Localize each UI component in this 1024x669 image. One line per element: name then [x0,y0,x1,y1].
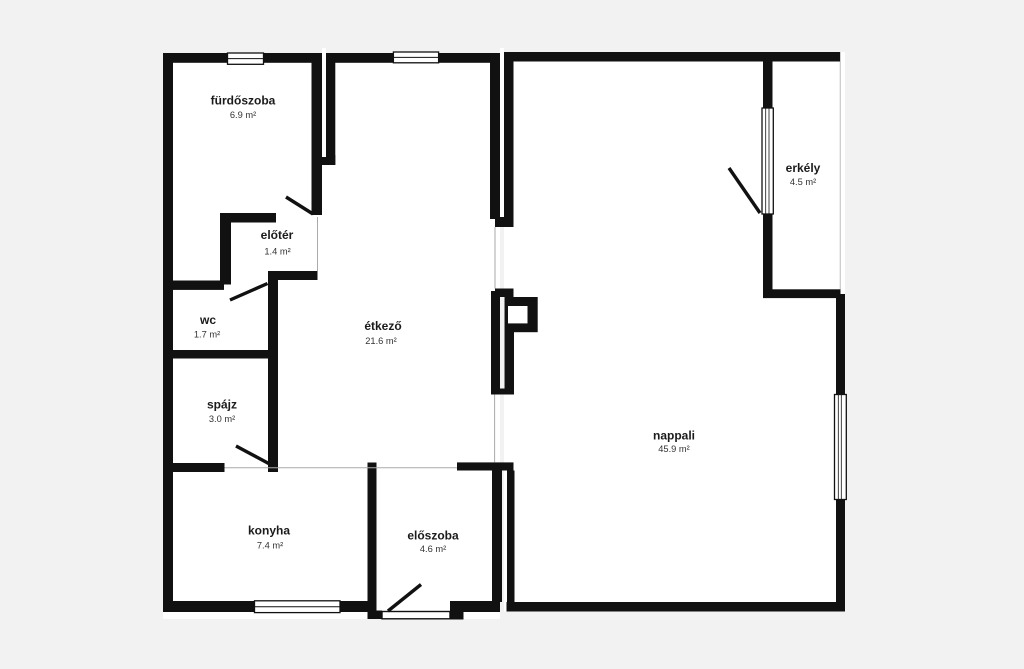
svg-text:45.9 m²: 45.9 m² [658,444,690,454]
svg-text:7.4 m²: 7.4 m² [257,541,283,551]
svg-text:előtér: előtér [261,228,294,242]
svg-text:előszoba: előszoba [407,529,459,543]
svg-text:3.0 m²: 3.0 m² [209,414,235,424]
svg-text:erkély: erkély [786,161,821,175]
svg-text:4.6 m²: 4.6 m² [420,544,446,554]
svg-text:nappali: nappali [653,429,695,443]
svg-text:wc: wc [199,313,216,327]
svg-text:21.6 m²: 21.6 m² [365,336,397,346]
svg-text:étkező: étkező [364,319,401,333]
svg-text:fürdőszoba: fürdőszoba [211,94,276,108]
svg-text:1.4 m²: 1.4 m² [264,247,290,257]
svg-text:4.5 m²: 4.5 m² [790,177,816,187]
svg-text:1.7 m²: 1.7 m² [194,330,220,340]
svg-text:konyha: konyha [248,524,290,538]
svg-text:spájz: spájz [207,398,237,412]
svg-text:6.9 m²: 6.9 m² [230,110,256,120]
